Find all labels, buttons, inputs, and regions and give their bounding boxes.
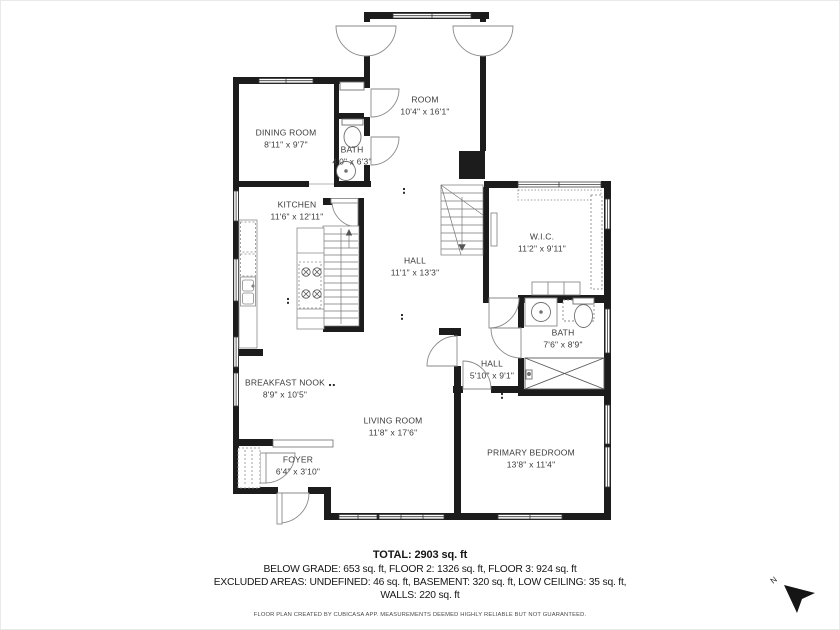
walls-area: WALLS: 220 sq. ft	[1, 590, 839, 601]
room-dims: 10'4" x 16'1"	[400, 106, 449, 118]
room-dims: 11'8" x 17'6"	[364, 427, 423, 439]
room-dims: 7'6" x 8'9"	[543, 339, 582, 351]
room-name: BATH	[543, 328, 582, 340]
dresser	[532, 282, 580, 295]
room-label-hall-small: HALL 5'10" x 9'1"	[470, 359, 514, 382]
toilet-primary-tank	[573, 298, 594, 304]
room-dims: 8'9" x 10'5"	[245, 389, 325, 401]
foyer-closet	[238, 448, 260, 488]
kitchen-fixtures	[239, 220, 324, 348]
stair-door	[332, 201, 358, 227]
room-dims: 8'11" x 9'7"	[256, 139, 317, 151]
room-label-room: ROOM 10'4" x 16'1"	[400, 95, 449, 118]
stair-door-leaf	[331, 199, 358, 204]
room-name: PRIMARY BEDROOM	[487, 448, 575, 460]
floor-areas: BELOW GRADE: 653 sq. ft, FLOOR 2: 1326 s…	[1, 564, 839, 575]
room-label-living-room: LIVING ROOM 11'8" x 17'6"	[364, 416, 423, 439]
total-area: TOTAL: 2903 sq. ft	[1, 549, 839, 561]
room-name: LIVING ROOM	[364, 416, 423, 428]
stairs-main	[323, 226, 359, 326]
room-name: BREAKFAST NOOK	[245, 378, 325, 390]
room-name: HALL	[391, 256, 440, 268]
room-name: KITCHEN	[271, 200, 324, 212]
room-label-foyer: FOYER 6'4" x 3'10"	[276, 455, 320, 478]
room-dims: 13'8" x 11'4"	[487, 459, 575, 471]
foyer-entry-door	[279, 493, 309, 523]
radiator	[491, 213, 497, 246]
room-dims: 11'2" x 9'11"	[518, 243, 566, 255]
wic-door	[489, 298, 519, 328]
room-dims: 11'6" x 12'11"	[271, 211, 324, 223]
excluded-areas: EXCLUDED AREAS: UNDEFINED: 46 sq. ft, BA…	[1, 577, 839, 588]
bathtub	[525, 358, 604, 389]
room-dims: 11'1" x 13'3"	[391, 267, 440, 279]
room-name: BATH	[332, 145, 371, 157]
toilet-primary	[575, 305, 593, 328]
room-label-breakfast-nook: BREAKFAST NOOK 8'9" x 10'5"	[245, 378, 325, 401]
balcony-door-left	[336, 26, 396, 56]
room-name: HALL	[470, 359, 514, 371]
toilet-upper-tank	[342, 119, 363, 125]
balcony-door-right	[453, 26, 513, 56]
foyer-inner-door-leaf	[260, 453, 266, 483]
bath-upper-door	[371, 137, 399, 165]
room-label-hall-main: HALL 11'1" x 13'3"	[391, 256, 440, 279]
room-name: W.I.C.	[518, 232, 566, 244]
room-dims: 4'0" x 6'3"	[332, 156, 371, 168]
room-label-dining-room: DINING ROOM 8'11" x 9'7"	[256, 128, 317, 151]
stairs-upper	[441, 185, 483, 255]
room-label-kitchen: KITCHEN 11'6" x 12'11"	[271, 200, 324, 223]
closet-shelf	[340, 82, 364, 90]
room-label-primary-bedroom: PRIMARY BEDROOM 13'8" x 11'4"	[487, 448, 575, 471]
room-label-wic: W.I.C. 11'2" x 9'11"	[518, 232, 566, 255]
eave-strip	[518, 190, 601, 200]
disclaimer: FLOOR PLAN CREATED BY CUBICASA APP. MEAS…	[1, 612, 839, 618]
foyer-entry-door-leaf	[277, 493, 282, 524]
closet-door-room	[371, 89, 399, 117]
hall-living-door	[427, 336, 457, 366]
closet-rail	[591, 195, 602, 289]
floor-plan-page: N DINING ROOM 8'11" x 9'7" ROOM 10'4" x …	[0, 0, 840, 630]
room-label-bath-primary: BATH 7'6" x 8'9"	[543, 328, 582, 351]
room-name: ROOM	[400, 95, 449, 107]
room-label-bath-upper: BATH 4'0" x 6'3"	[332, 145, 371, 168]
room-dims: 5'10" x 9'1"	[470, 370, 514, 382]
room-name: DINING ROOM	[256, 128, 317, 140]
room-name: FOYER	[276, 455, 320, 467]
room-dims: 6'4" x 3'10"	[276, 466, 320, 478]
bath-primary-door	[491, 328, 521, 358]
foyer-shelf	[273, 440, 333, 447]
